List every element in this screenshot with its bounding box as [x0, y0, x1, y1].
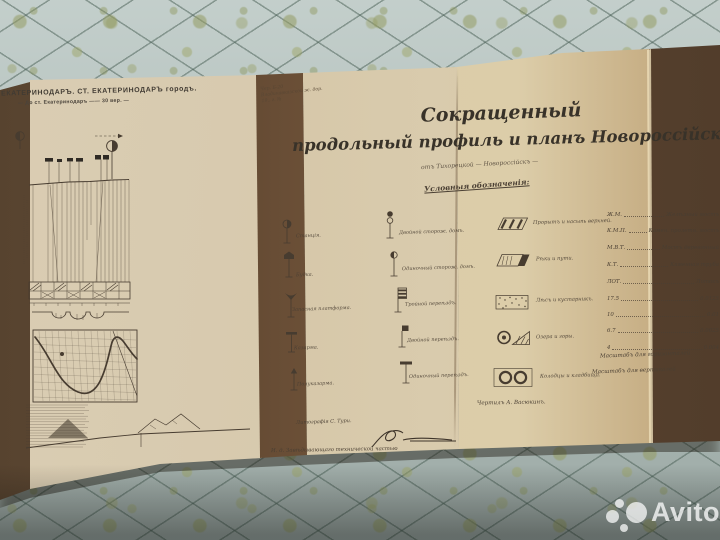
symbol-label: Рѣки и пути. [536, 256, 574, 263]
abbrev-row: 17.50.0125 [607, 296, 719, 302]
avito-logo-circle-icon [606, 510, 619, 523]
legend-label: Казарма. [294, 345, 319, 352]
abbrev-value: Лотокъ [696, 279, 719, 285]
abbrev-row: Ж.М.Желѣзный мостъ [607, 212, 719, 218]
avito-logo-circle-icon [615, 499, 624, 508]
dotted-leader [624, 216, 664, 217]
dotted-leader [618, 332, 699, 333]
abbrev-key: Ж.М. [607, 212, 622, 218]
abbrev-value: Каменная труба [670, 262, 719, 268]
dotted-leader [627, 249, 660, 250]
abbrev-row: К.М.П.Камен. пролетн. мостъ [607, 228, 719, 234]
drafted-by-line: Чертилъ А. Васюкинъ. [477, 399, 546, 406]
abbrev-row: М.В.Т.Мостъ деревянный [607, 245, 719, 251]
abbrev-value: 0.0125 [700, 296, 719, 302]
abbrev-key: 10 [607, 312, 614, 318]
abbrev-row: К.Т.Каменная труба [607, 262, 719, 268]
legend-label: Будка. [296, 272, 314, 279]
legend-label: Полуказарма. [297, 380, 334, 387]
abbrev-value: 0.004 [704, 345, 719, 351]
avito-watermark-text: Avito [651, 497, 720, 528]
dotted-leader [621, 300, 698, 301]
dotted-leader [623, 283, 694, 284]
abbrev-value: Камен. пролетн. мостъ [649, 228, 719, 234]
abbrev-row: 100.01 [607, 312, 719, 318]
legend-label: Станція. [296, 233, 321, 240]
abbrev-value: Мостъ деревянный [662, 245, 719, 251]
abbrev-key: К.Т. [607, 262, 618, 268]
photo-scene: ЕКАТЕРИНОДАРЪ. СТ. ЕКАТЕРИНОДАРЪ городъ.… [0, 0, 720, 540]
abbrev-key: 17.5 [607, 296, 619, 302]
abbrev-key: М.В.Т. [607, 245, 625, 251]
symbol-label: Озера и горы. [536, 334, 574, 341]
abbrev-key: ЛОТ. [607, 279, 621, 285]
abbrev-value: 0.01 [707, 312, 719, 318]
abbrev-row: 6.70.0025 [607, 328, 719, 334]
abbrev-row: ЛОТ.Лотокъ [607, 279, 719, 285]
avito-watermark: Avito [604, 497, 718, 539]
abbrev-key: 4 [607, 345, 610, 351]
dotted-leader [620, 266, 668, 267]
dotted-leader [629, 232, 647, 233]
abbrev-row: 40.004 [607, 345, 719, 351]
avito-logo-circle-icon [620, 524, 628, 532]
abbrev-value: Желѣзный мостъ [666, 212, 719, 218]
abbrev-value: 0.0025 [700, 328, 719, 334]
dotted-leader [616, 316, 705, 317]
abbrev-key: 6.7 [607, 328, 616, 334]
avito-logo-circle-icon [626, 502, 647, 523]
abbrev-key: К.М.П. [607, 228, 627, 234]
